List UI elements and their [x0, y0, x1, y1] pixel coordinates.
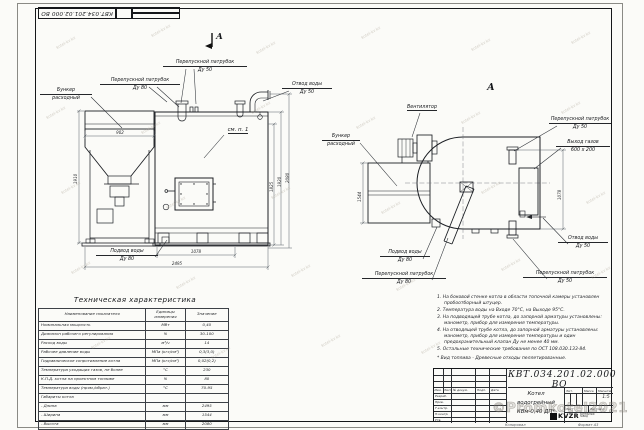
spec-row: - Длинамм2495 — [39, 402, 229, 411]
spec-row: - Ширинамм1544 — [39, 411, 229, 420]
tb-line — [434, 399, 506, 400]
spec-cell: мм — [146, 402, 185, 411]
tb-line — [489, 369, 490, 423]
technical-notes: 1. На боковой стенке котла в области топ… — [437, 295, 609, 363]
note-item-1: 1. На боковой стенке котла в области топ… — [437, 295, 609, 307]
spec-cell: 30-100 — [185, 330, 228, 339]
dim-left-height: 1910 — [73, 174, 78, 184]
side-view-fan — [398, 135, 437, 163]
spec-cell: м³/ч — [146, 339, 185, 348]
dim-total-length: 2495 — [162, 261, 192, 266]
spec-row: Номинальная мощностьМВт0,40 — [39, 321, 229, 330]
tb-col-podp: Подп. — [477, 388, 486, 392]
spec-row: Температура уходящих газов, не более°С23… — [39, 366, 229, 375]
spec-cell: 2495 — [185, 402, 228, 411]
spec-cell: % — [146, 330, 185, 339]
spec-header-name: Наименование показателя — [39, 309, 146, 322]
spec-header-unit: Единицы измерения — [146, 309, 185, 322]
logo-mark-icon — [550, 413, 557, 420]
spec-row: Габариты котла — [39, 393, 229, 402]
spec-cell: Рабочее давление воды — [39, 348, 146, 357]
spec-cell: °С — [146, 384, 185, 393]
side-label-bypass-50-top-line1: Перепускной патрубок — [549, 116, 611, 124]
side-label-gas-out-line2: 600 х 200 — [556, 147, 610, 154]
spec-table-header-row: Наименование показателя Единицы измерени… — [39, 309, 229, 322]
spec-header-value: Значение — [185, 309, 228, 322]
side-label-water-out: Отвод воды Ду 50 — [558, 235, 608, 251]
tb-line — [506, 369, 507, 423]
note-item-5: 5. Остальные технические требования по О… — [437, 347, 609, 353]
title-block: Изм. Лист № докум. Подп. Дата Разраб. Пр… — [433, 368, 612, 422]
tb-line — [564, 405, 613, 406]
spec-cell — [146, 393, 185, 402]
side-label-bypass-80: Перепускной патрубок Ду 80 — [362, 271, 446, 287]
front-label-bypass-50-line2: Ду 50 — [163, 67, 247, 74]
side-label-water-out-line2: Ду 50 — [558, 243, 608, 250]
tb-doc-number: КВТ.034.201.02.000 ВО — [508, 370, 611, 390]
front-label-bypass-80-line2: Ду 80 — [100, 85, 180, 92]
front-section-mark-arrow — [205, 33, 212, 49]
tb-row-razrab: Разраб. — [435, 394, 447, 398]
side-label-gas-out-line1: Выход газов — [556, 139, 610, 147]
side-label-hopper-line1: Бункер — [322, 133, 360, 141]
spec-cell: % — [146, 375, 185, 384]
side-label-bypass-50-bottom-line1: Перепускной патрубок — [523, 270, 607, 278]
spec-cell: - Ширина — [39, 411, 146, 420]
tb-line — [434, 417, 506, 418]
footer-copied-label: Копировал — [505, 423, 526, 427]
spec-cell: Расход воды — [39, 339, 146, 348]
side-view-rear-arrow — [526, 215, 546, 219]
tb-row-prov: Пров. — [435, 400, 444, 404]
spec-cell: Температура уходящих газов, не более — [39, 366, 146, 375]
dim-height-1920: 1920 — [277, 177, 282, 187]
front-label-hopper-line2: расходный — [40, 95, 92, 102]
tb-lit-label: Лит. — [566, 389, 573, 393]
spec-cell: Габариты котла — [39, 393, 146, 402]
front-label-bypass-80: Перепускной патрубок Ду 80 — [100, 77, 180, 93]
tb-col-data: Дата — [491, 388, 499, 392]
front-label-hopper: Бункер расходный — [40, 87, 92, 103]
dim-base-length: 1078 — [182, 249, 210, 254]
front-view-door-bolts — [180, 183, 207, 204]
spec-cell: МПа (кгс/см²) — [146, 357, 185, 366]
side-label-bypass-80-line2: Ду 80 — [362, 279, 446, 286]
side-label-water-out-line1: Отвод воды — [558, 235, 608, 243]
spec-cell — [185, 393, 228, 402]
spec-cell: 14 — [185, 339, 228, 348]
tb-line — [475, 369, 476, 423]
spec-table-title: Техническая характеристика — [55, 295, 215, 304]
spec-row: Диапазон рабочего регулирования%30-100 — [39, 330, 229, 339]
side-view-drum — [405, 127, 550, 239]
spec-cell: °С — [146, 366, 185, 375]
side-label-hopper: Бункер расходный — [322, 133, 360, 149]
spec-cell: 0,02(0,2) — [185, 357, 228, 366]
front-label-water-out-line2: Ду 50 — [282, 89, 332, 96]
spec-cell: 0,3(3,0) — [185, 348, 228, 357]
front-label-hopper-line1: Бункер — [40, 87, 92, 95]
tb-row-utv: Утв. — [435, 418, 441, 422]
tb-line — [451, 369, 452, 423]
front-label-see-note: см. п. 1 — [220, 126, 256, 134]
spec-cell: мм — [146, 420, 185, 429]
spec-row: - Высотамм2080 — [39, 420, 229, 429]
spec-cell: МВт — [146, 321, 185, 330]
front-label-water-out-line1: Отвод воды — [282, 81, 332, 89]
side-label-fan: Вентилятор — [396, 104, 448, 111]
drawing-sheet: КВТ.034.201.02.000 ВО — [0, 0, 644, 430]
side-label-water-in: Подвод воды Ду 80 — [380, 249, 430, 265]
spec-cell: 2080 — [185, 420, 228, 429]
front-label-bypass-50-line1: Перепускной патрубок — [163, 59, 247, 67]
note-item-2: 2. Температура воды на Входе 70°С, на Вы… — [437, 308, 609, 314]
dim-height-2080: 2080 — [285, 173, 290, 183]
note-item-3: 3. На подводящей трубе котла, до запорно… — [437, 315, 609, 327]
dim-gas-height-1078: 1078 — [557, 190, 562, 200]
front-view-leader-lines — [91, 69, 289, 257]
spec-cell: - Длина — [39, 402, 146, 411]
tb-line — [570, 393, 571, 405]
spec-cell: Номинальная мощность — [39, 321, 146, 330]
side-label-water-in-line2: Ду 80 — [380, 257, 430, 264]
dim-hopper-width: 902 — [108, 130, 132, 135]
tb-row-nkontr: Н.контр. — [435, 412, 448, 416]
tb-col-docnum: № докум. — [453, 388, 468, 392]
dim-height-1825: 1825 — [269, 182, 274, 192]
tb-sheet-label: Лист — [566, 407, 574, 411]
side-view-auger — [444, 182, 474, 244]
front-section-mark: А — [216, 32, 223, 42]
tb-row-tkontr: Т.контр. — [435, 406, 448, 410]
side-label-fan-text: Вентилятор — [407, 105, 437, 111]
spec-row: Рабочее давление водыМПа (кгс/см²)0,3(3,… — [39, 348, 229, 357]
spec-cell: МПа (кгс/см²) — [146, 348, 185, 357]
spec-cell: 230 — [185, 366, 228, 375]
side-view-mark: А — [487, 82, 495, 93]
spec-cell: мм — [146, 411, 185, 420]
spec-row: Температура воды (прям./обрат.)°С70-95 — [39, 384, 229, 393]
tb-line — [434, 381, 506, 382]
spec-table: Наименование показателя Единицы измерени… — [38, 308, 229, 430]
tb-line — [434, 375, 506, 376]
front-view-top-fittings — [176, 90, 270, 121]
spec-cell: 0,40 — [185, 321, 228, 330]
front-label-see-note-text: см. п. 1 — [228, 127, 249, 134]
spec-cell: 80 — [185, 375, 228, 384]
front-label-bypass-80-line1: Перепускной патрубок — [100, 77, 180, 85]
side-label-bypass-50-top: Перепускной патрубок Ду 50 — [549, 116, 611, 132]
note-footnote: * Вид топлива - Древесные отходы пеллети… — [437, 356, 609, 362]
side-label-hopper-line2: расходный — [322, 141, 360, 148]
spec-row: Расход водым³/ч14 — [39, 339, 229, 348]
spec-row: Гидравлическое сопротивление котлаМПа (к… — [39, 357, 229, 366]
footer-format-label: Формат А3 — [578, 423, 598, 427]
spec-cell: 70-95 — [185, 384, 228, 393]
spec-cell: Диапазон рабочего регулирования — [39, 330, 146, 339]
front-label-water-in-line2: Ду 80 — [96, 256, 158, 263]
tb-line — [564, 393, 613, 394]
tb-line — [588, 405, 589, 412]
front-label-bypass-50: Перепускной патрубок Ду 50 — [163, 59, 247, 75]
side-label-bypass-50-top-line2: Ду 50 — [549, 124, 611, 131]
tb-col-izm: Изм. — [435, 388, 442, 392]
side-label-bypass-50-bottom-line2: Ду 50 — [523, 278, 607, 285]
spec-cell: Гидравлическое сопротивление котла — [39, 357, 146, 366]
tb-product-name-line1: Котел водогрейный — [508, 390, 564, 408]
spec-cell: Температура воды (прям./обрат.) — [39, 384, 146, 393]
side-label-bypass-80-line1: Перепускной патрубок — [362, 271, 446, 279]
logo-subtext: КОТЕЛЬНЫЙ ЗАВОД — [580, 414, 597, 419]
tb-mass-label: Масса — [584, 389, 594, 393]
logo-text: KVZR — [558, 412, 579, 420]
note-item-4: 4. На отводящей трубе котла, до запорной… — [437, 328, 609, 346]
side-label-bypass-50-bottom: Перепускной патрубок Ду 50 — [523, 270, 607, 286]
side-view-hopper — [368, 163, 430, 223]
tb-sheets-label: Листов 1 — [590, 407, 604, 411]
tb-scale-label: Масштаб — [598, 389, 612, 393]
front-label-water-in: Подвод воды Ду 80 — [96, 248, 158, 264]
front-label-water-in-line1: Подвод воды — [96, 248, 158, 256]
tb-col-list: Лист — [444, 388, 452, 392]
spec-cell: 1544 — [185, 411, 228, 420]
tb-line — [576, 393, 577, 405]
spec-row: К.П.Д. котла на проектном топливе%80 — [39, 375, 229, 384]
side-label-water-in-line1: Подвод воды — [380, 249, 430, 257]
spec-cell: - Высота — [39, 420, 146, 429]
spec-cell: К.П.Д. котла на проектном топливе — [39, 375, 146, 384]
manufacturer-logo: KVZR КОТЕЛЬНЫЙ ЗАВОД — [550, 412, 597, 420]
front-label-water-out: Отвод воды Ду 50 — [282, 81, 332, 97]
tb-scale-value: 1:5 — [600, 395, 612, 400]
dim-depth-1544: 1544 — [357, 192, 362, 202]
side-label-gas-out: Выход газов 600 х 200 — [556, 139, 610, 155]
